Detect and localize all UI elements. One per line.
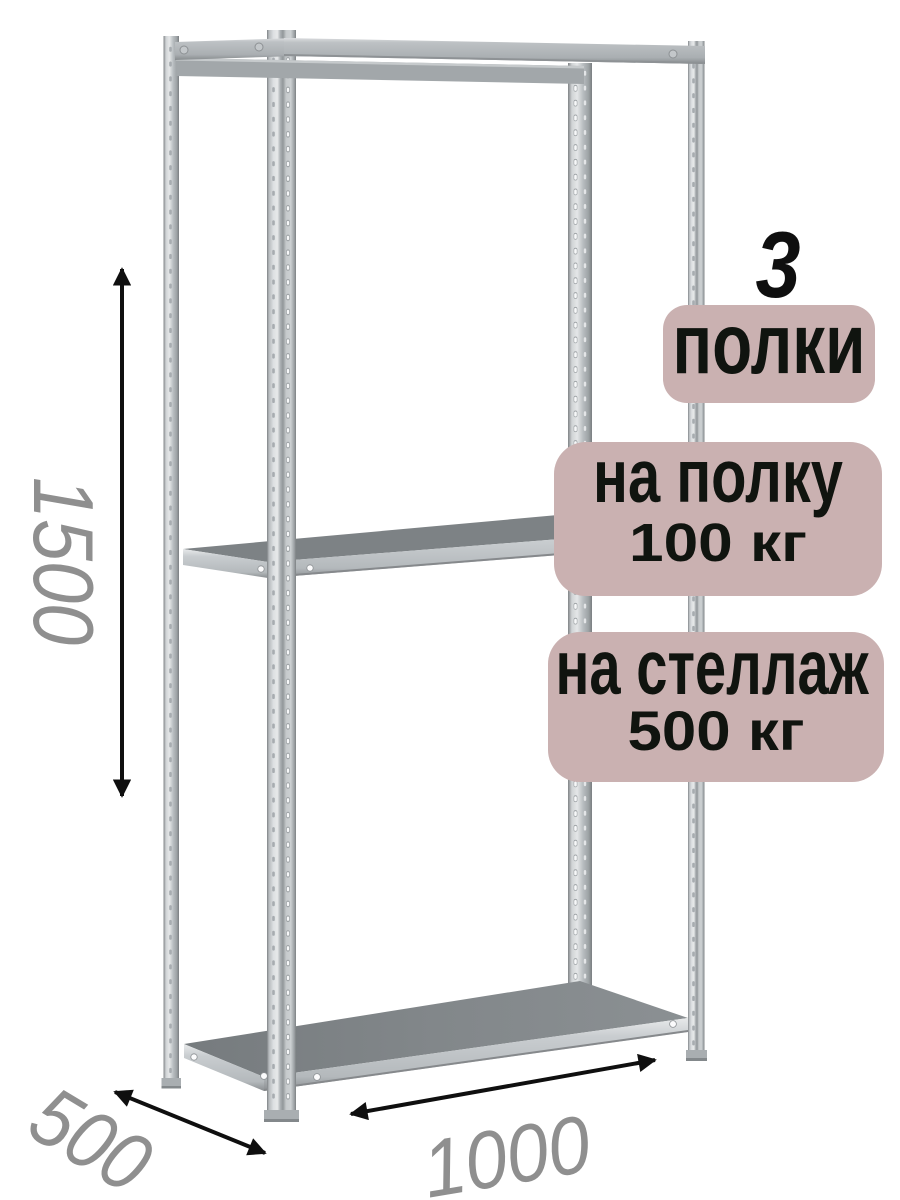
svg-text:1000: 1000 — [416, 1099, 597, 1200]
svg-text:100 кг: 100 кг — [629, 513, 807, 573]
svg-text:500: 500 — [14, 1068, 166, 1200]
svg-text:на полку: на полку — [593, 434, 843, 518]
svg-text:полки: полки — [673, 297, 866, 392]
svg-text:1500: 1500 — [15, 477, 110, 645]
svg-text:500 кг: 500 кг — [628, 699, 805, 762]
